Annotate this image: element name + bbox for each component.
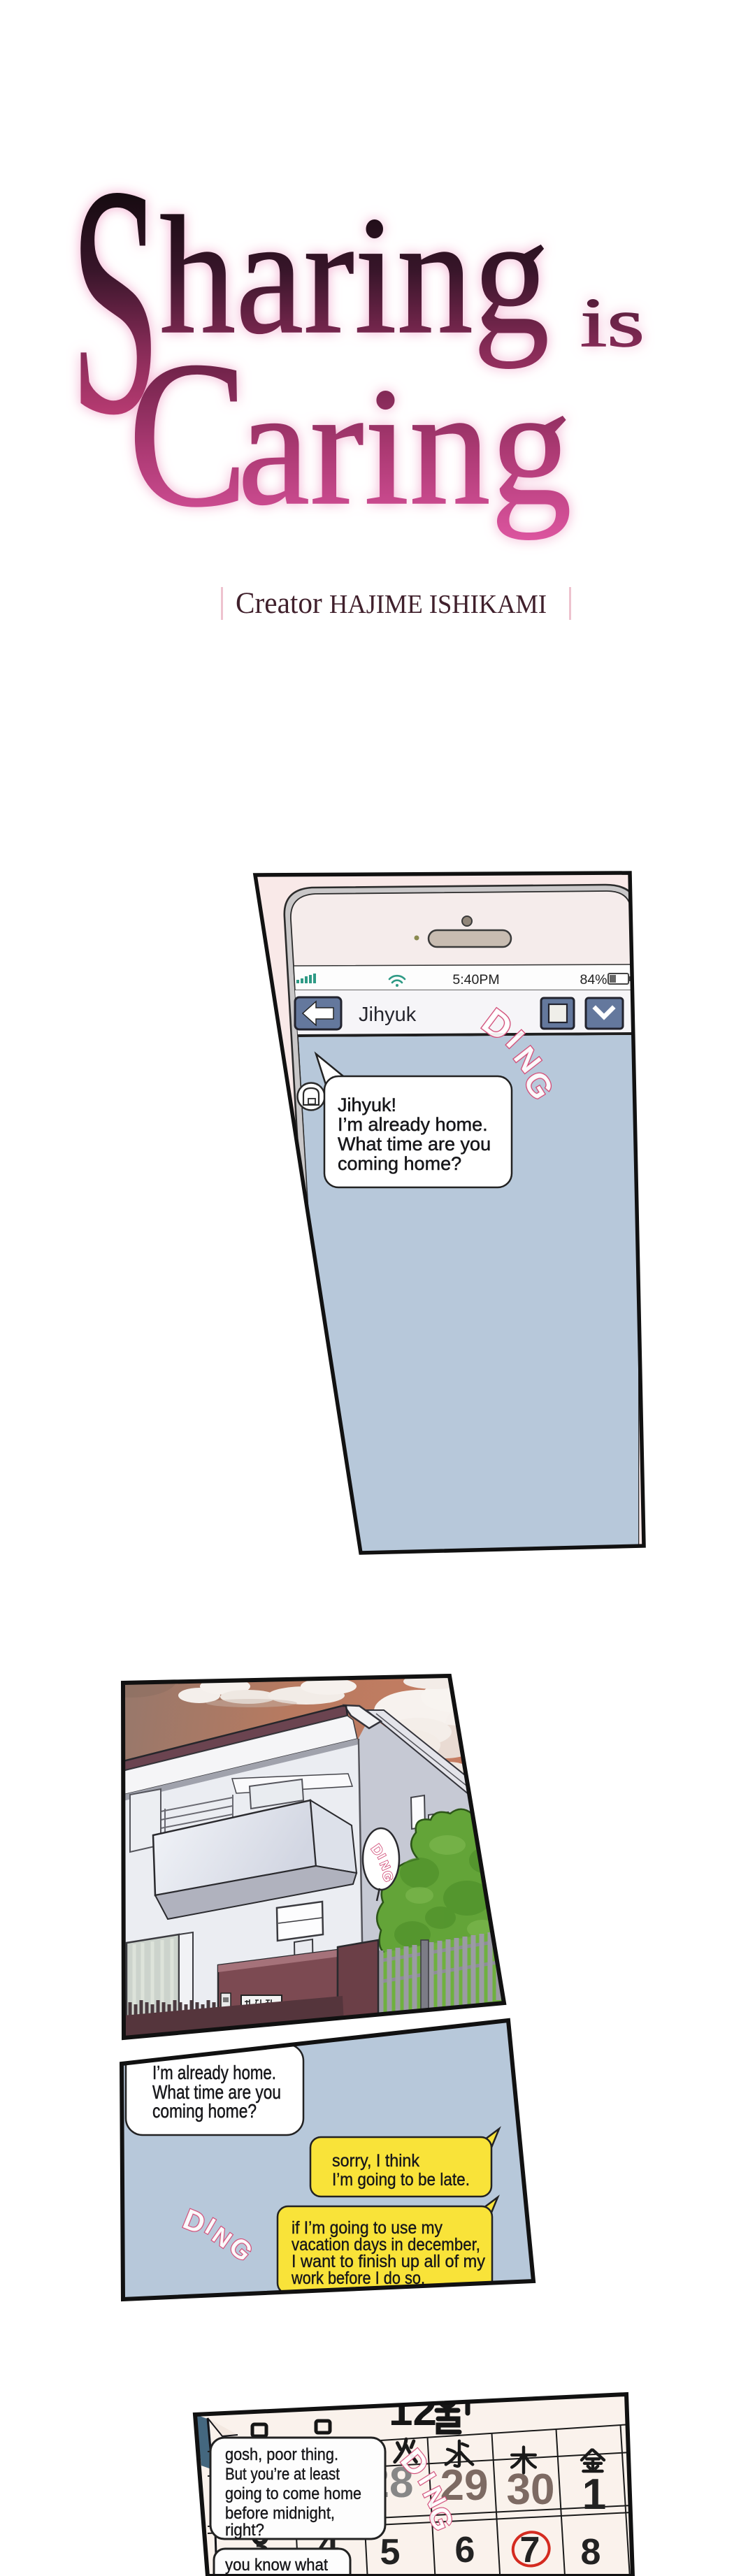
- svg-text:Creator HAJIME ISHIKAMI: Creator HAJIME ISHIKAMI: [236, 587, 547, 620]
- svg-text:Jihyuk!: Jihyuk!: [338, 1094, 396, 1115]
- svg-text:But you’re at least: But you’re at least: [225, 2465, 340, 2484]
- svg-text:right?: right?: [225, 2521, 264, 2540]
- svg-text:29: 29: [440, 2461, 489, 2510]
- svg-text:8: 8: [581, 2532, 601, 2573]
- svg-text:What time are you: What time are you: [338, 1134, 491, 1155]
- svg-text:5: 5: [380, 2532, 401, 2573]
- svg-text:12: 12: [389, 2387, 437, 2435]
- svg-text:Jihyuk: Jihyuk: [359, 1004, 417, 1026]
- svg-text:C: C: [128, 318, 248, 550]
- svg-text:5:40PM: 5:40PM: [452, 972, 499, 987]
- svg-text:going to come home: going to come home: [225, 2484, 361, 2503]
- svg-text:I’m going to be late.: I’m going to be late.: [332, 2170, 470, 2190]
- svg-text:1: 1: [582, 2470, 606, 2519]
- svg-text:sorry, I think: sorry, I think: [332, 2151, 419, 2171]
- svg-text:6: 6: [455, 2530, 475, 2570]
- svg-text:I’m already home.: I’m already home.: [338, 1114, 488, 1135]
- svg-text:coming home?: coming home?: [338, 1153, 461, 1174]
- svg-text:you know what: you know what: [225, 2556, 328, 2575]
- svg-text:gosh, poor thing.: gosh, poor thing.: [225, 2445, 338, 2464]
- svg-text:84%: 84%: [580, 972, 607, 987]
- svg-text:I’m already home.: I’m already home.: [152, 2062, 276, 2083]
- svg-text:30: 30: [507, 2466, 555, 2514]
- svg-text:aring: aring: [238, 353, 572, 540]
- svg-text:before midnight,: before midnight,: [225, 2504, 335, 2523]
- svg-text:is: is: [580, 284, 645, 361]
- svg-text:coming home?: coming home?: [152, 2100, 257, 2122]
